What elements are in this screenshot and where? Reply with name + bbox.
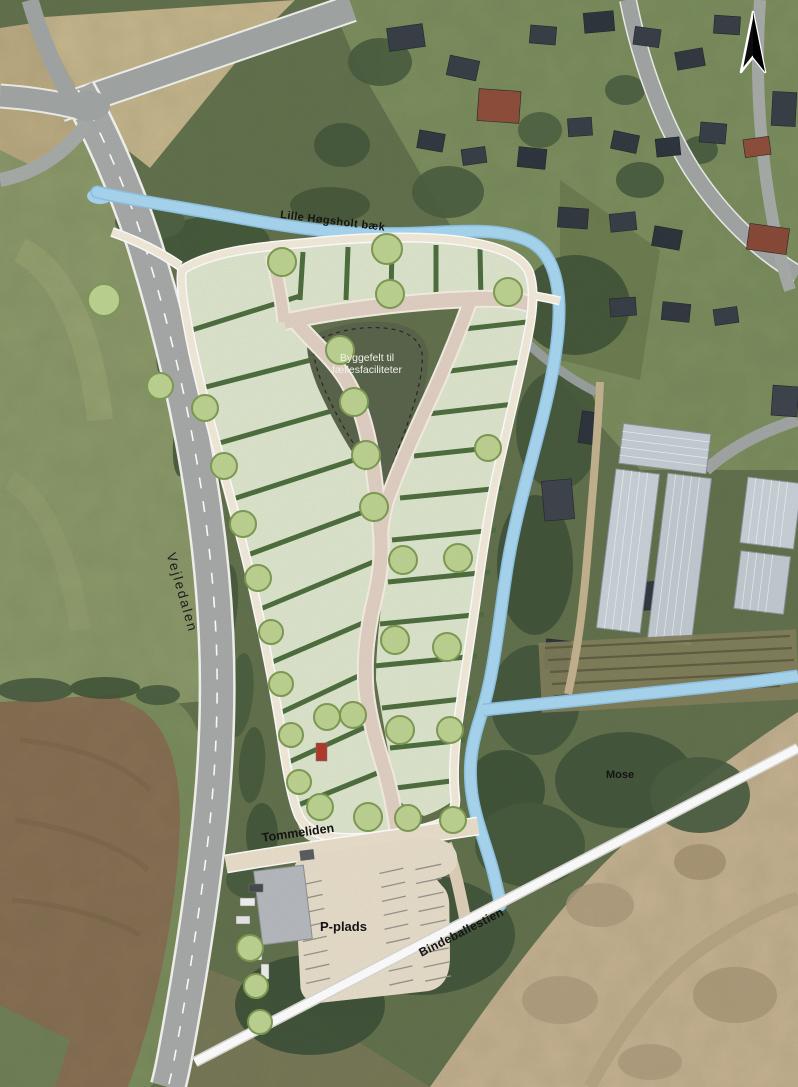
- map-canvas: [0, 0, 798, 1087]
- parking-lot: [293, 836, 465, 1004]
- label-byggefelt-line2: fællesfaciliteter: [332, 364, 402, 376]
- label-byggefelt-line1: Byggefelt til: [340, 352, 394, 364]
- label-parking: P-plads: [320, 920, 367, 935]
- label-byggefelt: Byggefelt til fællesfaciliteter: [307, 352, 427, 376]
- aerial-site-plan-map: Lille Høgsholt bæk Byggefelt til fællesf…: [0, 0, 798, 1087]
- label-bog-mose: Mose: [606, 769, 634, 782]
